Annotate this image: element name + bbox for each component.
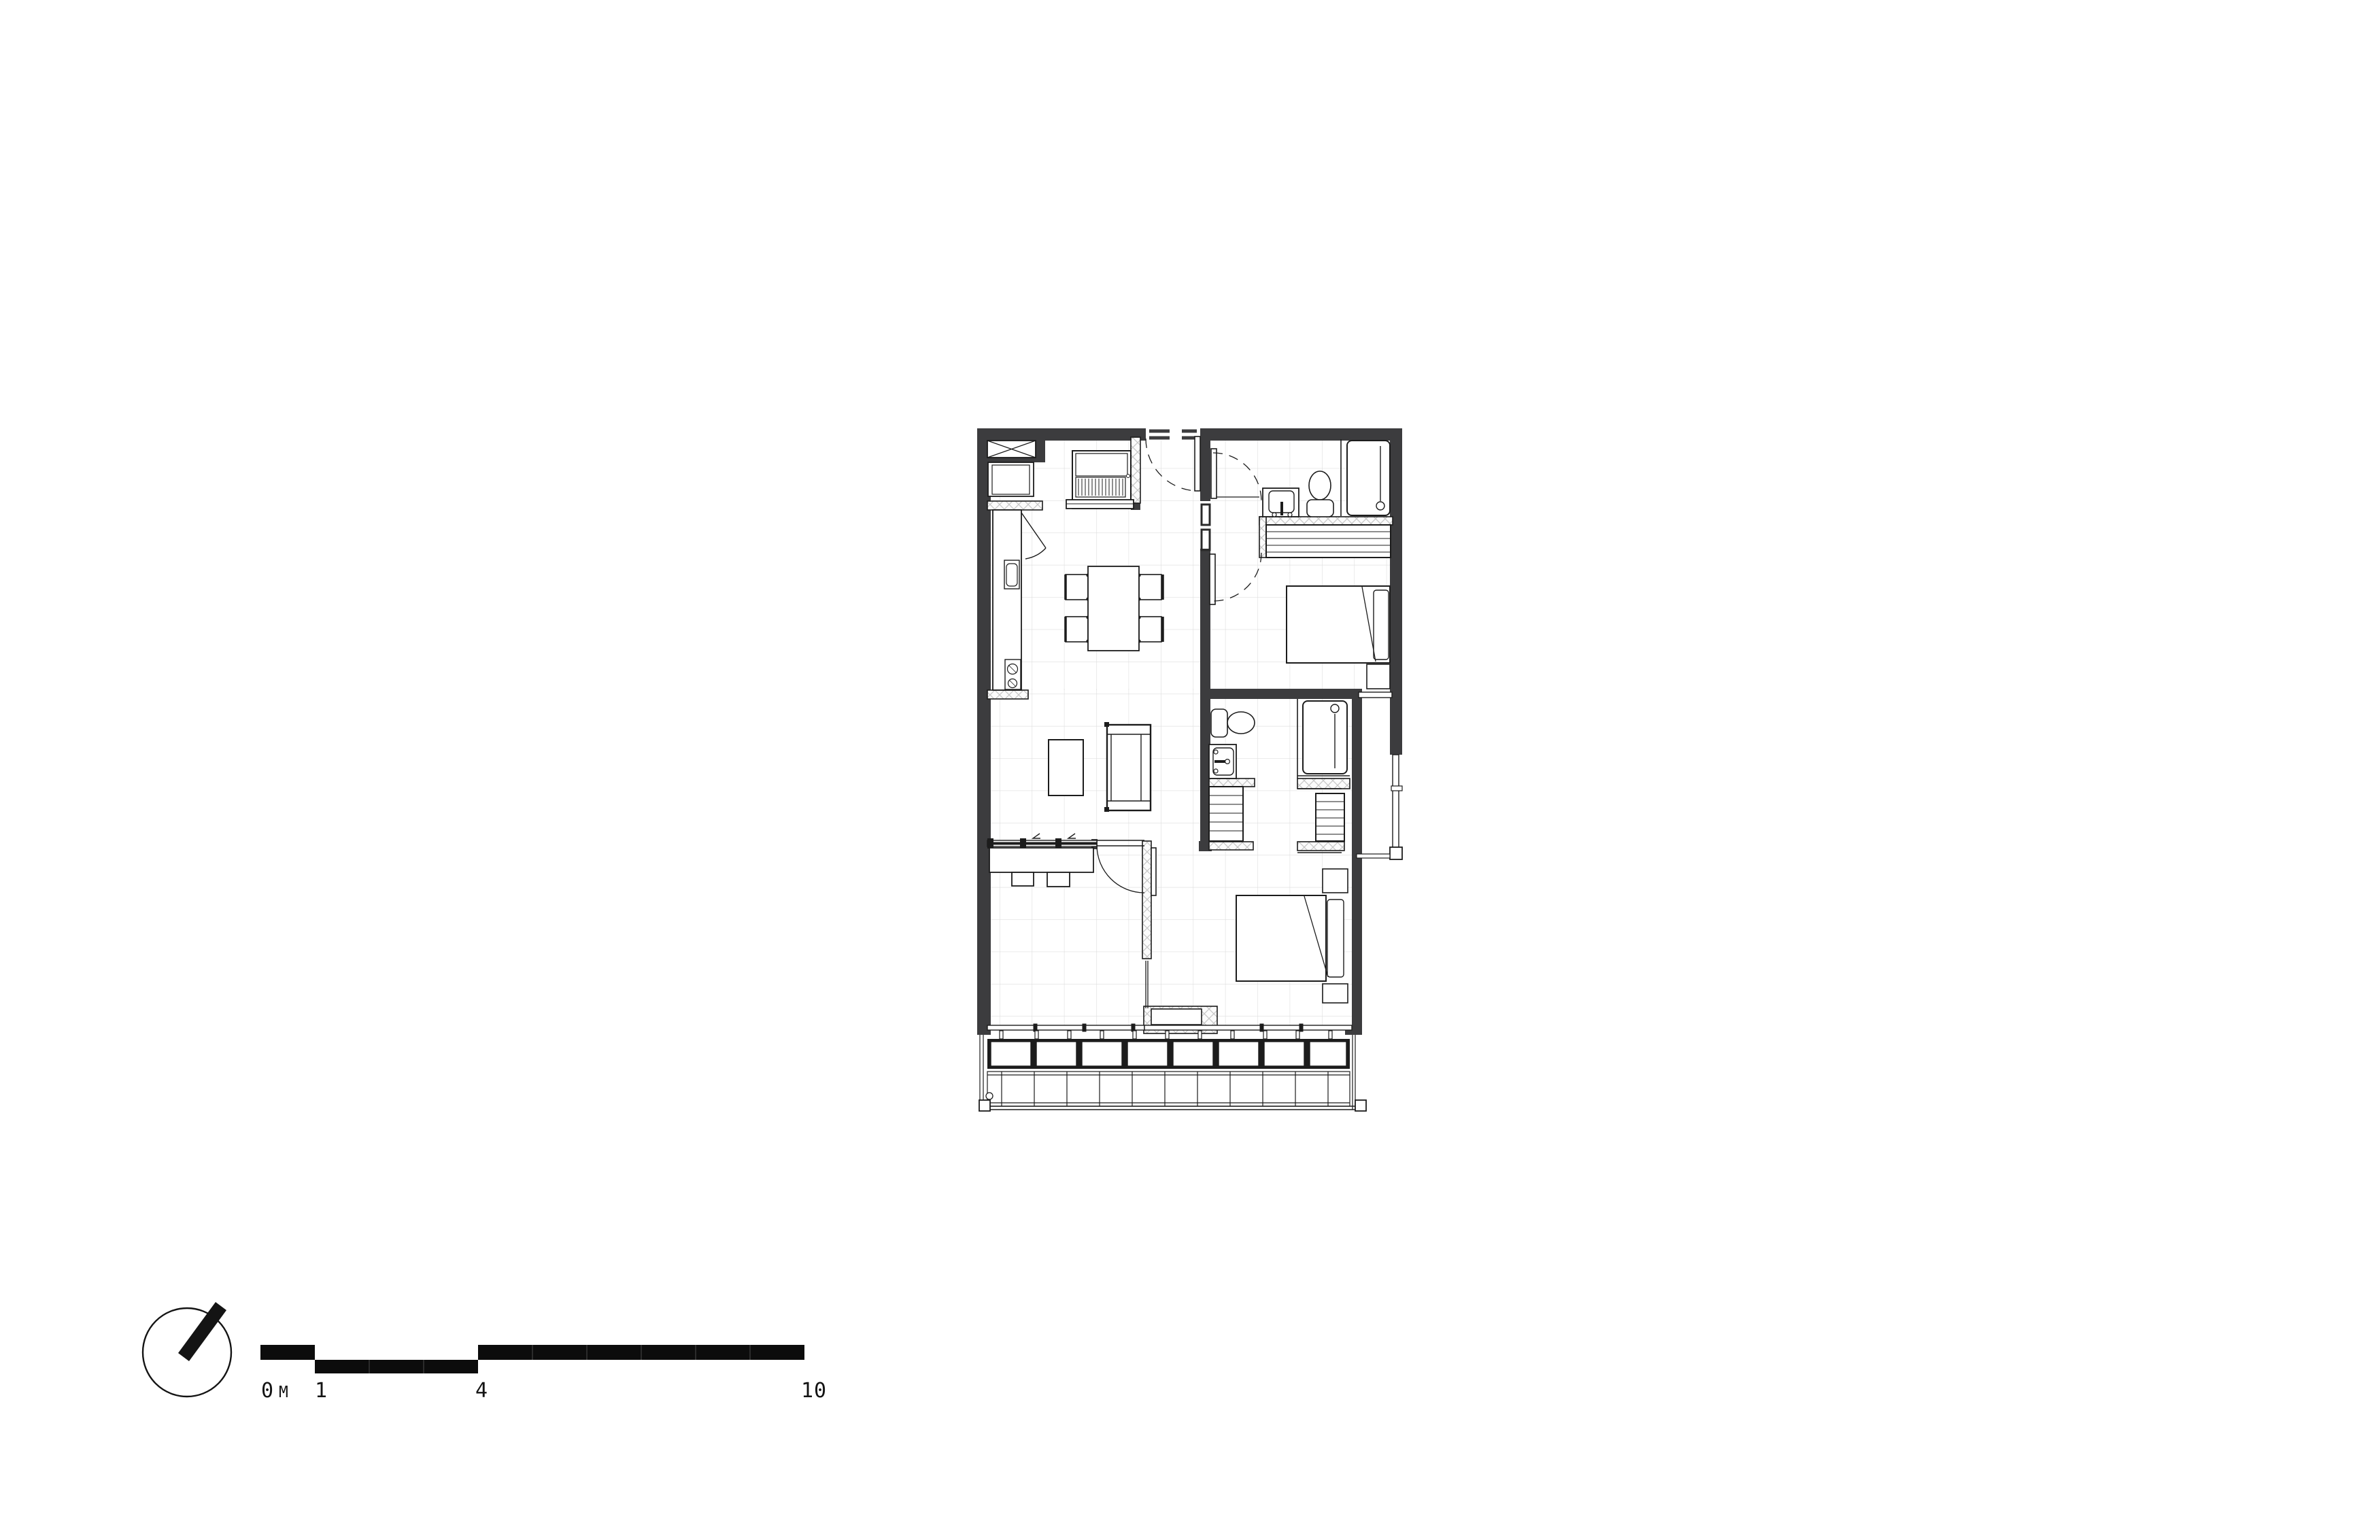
external-bay	[1357, 755, 1402, 859]
vanity-1	[1263, 488, 1299, 517]
scale-label-4: 4	[475, 1379, 488, 1403]
bedroom-2-door-leaf	[1151, 848, 1156, 895]
linen-cupboard-icon	[987, 441, 1036, 458]
bed-2	[1236, 895, 1326, 981]
cooktop-icon	[1005, 660, 1021, 689]
planter-boxes	[987, 1039, 1350, 1069]
scale-label-10: 10	[801, 1379, 827, 1403]
downpipe-icon	[986, 1093, 993, 1099]
scale-segment-1-4	[315, 1360, 478, 1373]
balcony-rail-post-left	[979, 1100, 990, 1111]
niche-bottom-bar	[1066, 500, 1134, 509]
bed-1-pillow	[1374, 590, 1389, 660]
bedroom-1-door-leaf	[1210, 554, 1215, 604]
balcony-posts	[1000, 1031, 1332, 1039]
balcony-left-rail	[980, 1035, 983, 1110]
living-window-wall	[987, 1024, 1144, 1031]
bedside-table-1	[1367, 664, 1390, 689]
bedside-table-2b	[1323, 984, 1348, 1003]
fridge-icon	[988, 462, 1034, 496]
balcony-right-rail	[1353, 1035, 1355, 1110]
floor-plan	[977, 428, 1402, 1111]
kitchen-sink-icon	[1004, 560, 1019, 589]
robe-1	[1266, 525, 1391, 558]
bed-2-pillow	[1327, 900, 1344, 977]
shower-1	[1341, 439, 1390, 516]
scale-segment-0-1	[260, 1345, 315, 1360]
scale-label-1: 1	[315, 1379, 328, 1403]
scale-unit-label: M	[279, 1384, 288, 1401]
balcony-decking	[987, 1072, 1350, 1106]
shower-2	[1297, 699, 1350, 778]
bedside-table-2a	[1323, 869, 1348, 893]
coffee-table	[1049, 740, 1083, 795]
balcony-rail	[980, 1106, 1366, 1110]
bathroom-1-door-leaf	[1211, 449, 1217, 498]
bedroom-2-window-wall	[1144, 1024, 1352, 1031]
scale-label-0: 0	[261, 1379, 274, 1403]
entry-door-leaf	[1195, 437, 1200, 491]
north-arrow-icon	[143, 1302, 231, 1397]
balcony	[979, 1031, 1366, 1111]
scale-bar: 0 M 1 4 10	[260, 1345, 827, 1403]
vanity-2	[1209, 745, 1236, 778]
balcony-planter-box-inner	[1151, 1009, 1202, 1025]
sheet: 0 M 1 4 10	[0, 0, 2380, 1540]
sofa-icon	[1104, 722, 1151, 812]
bedroom-1-window	[1359, 692, 1392, 698]
floor-plan-drawing: 0 M 1 4 10	[0, 0, 2380, 1540]
balcony-rail-post-right	[1355, 1100, 1366, 1111]
dining-table	[1088, 566, 1139, 651]
